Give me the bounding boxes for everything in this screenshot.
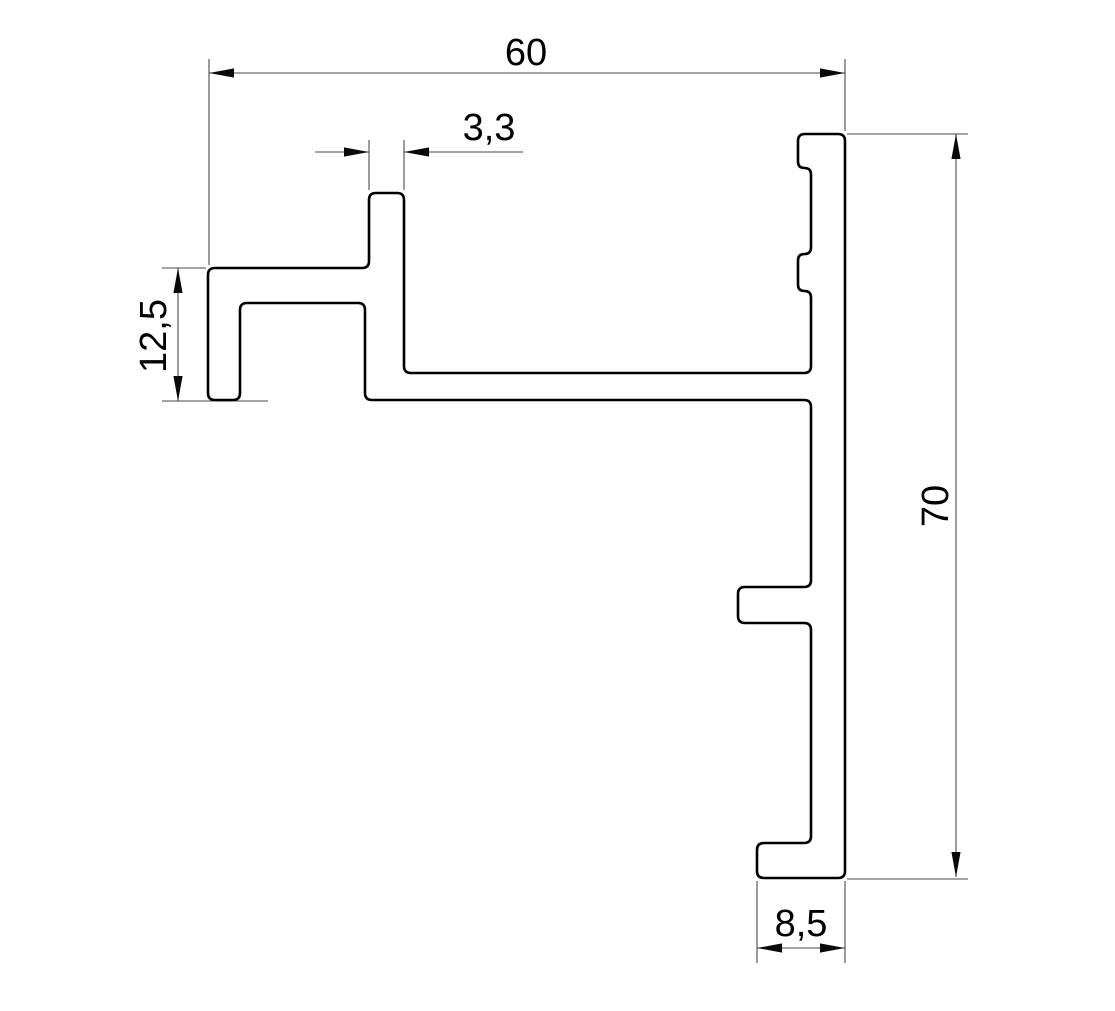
dim-label-height-12-5: 12,5	[133, 299, 175, 373]
dimension-annotations	[162, 59, 968, 963]
dim-60-arrowhead	[820, 68, 845, 77]
dim-60-arrowhead	[209, 68, 234, 77]
drawing-page: 60 3,3 12,5 70 8,5	[0, 0, 1115, 1011]
dim-label-height-70: 70	[915, 485, 957, 527]
dim-label-tab-3-3: 3,3	[463, 107, 516, 149]
dim-70-arrowhead	[951, 134, 960, 159]
dim-70-arrowhead	[951, 852, 960, 877]
dim-12-5-arrowhead	[173, 268, 182, 293]
profile-outline	[208, 134, 845, 878]
dim-label-foot-8-5: 8,5	[775, 903, 828, 945]
dim-3-3-arrowhead	[404, 147, 429, 156]
technical-drawing: 60 3,3 12,5 70 8,5	[0, 0, 1115, 1011]
dim-12-5-arrowhead	[173, 376, 182, 401]
dim-label-width-60: 60	[505, 32, 547, 74]
dimension-labels: 60 3,3 12,5 70 8,5	[133, 32, 957, 945]
dim-3-3-arrowhead	[344, 147, 369, 156]
